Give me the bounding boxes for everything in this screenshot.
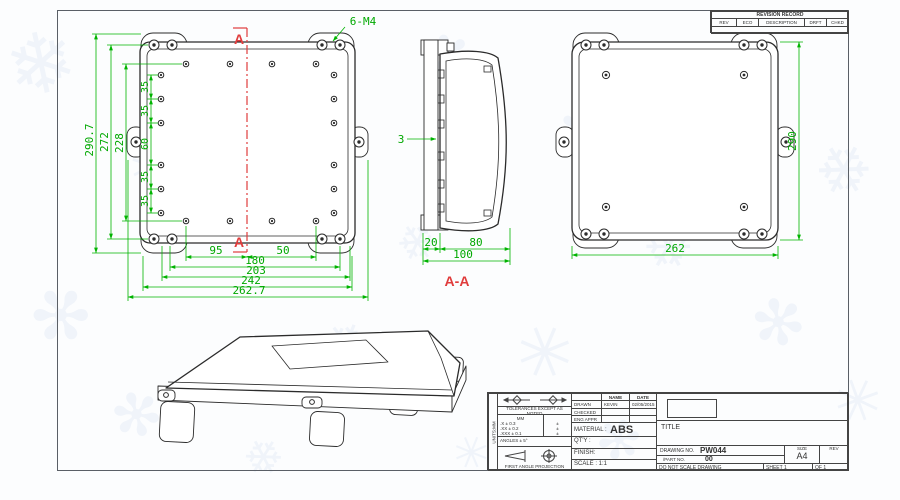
revision-empty-row <box>711 26 849 34</box>
datum-symbols-row <box>497 393 572 407</box>
section-marker-bottom: A <box>234 234 244 250</box>
thickness-dim: 3 <box>398 133 405 146</box>
section-dims-bottom: 20 80 100 <box>423 228 510 265</box>
part-no-value: 00 <box>705 456 713 463</box>
svg-text:35: 35 <box>140 105 151 117</box>
no-scale-note: DO NOT SCALE DRAWING <box>656 463 764 471</box>
front-view: A A 6-M4 290.7 272 228 35 <box>83 15 377 301</box>
size-cell: SIZE A4 <box>784 445 820 464</box>
datum-symbols-icon <box>502 394 568 406</box>
of-cell: OF 1 <box>812 463 849 471</box>
revision-record-table: REVISION RECORD REV ECO DESCRIPTION DRFT… <box>710 10 848 33</box>
material-value: ABS <box>610 424 633 436</box>
sheet-cell: SHEET 1 <box>763 463 813 471</box>
svg-text:100: 100 <box>453 248 473 261</box>
svg-text:50: 50 <box>276 244 289 257</box>
svg-text:272: 272 <box>98 132 111 152</box>
svg-text:35: 35 <box>140 171 151 183</box>
first-angle-projection-icon <box>501 448 571 463</box>
back-view: 290 262 <box>556 33 803 259</box>
title-cell: TITLE <box>656 420 849 446</box>
section-marker-top: A <box>234 31 244 47</box>
section-view-label: A-A <box>445 273 470 289</box>
svg-text:262: 262 <box>665 242 685 255</box>
drawing-no-value: PW044 <box>700 446 726 455</box>
svg-text:35: 35 <box>140 81 151 93</box>
svg-text:290.7: 290.7 <box>83 123 96 156</box>
tolerance-inch-col: ± ± ± <box>543 414 572 437</box>
projection-label: FIRST ANGLE PROJECTION <box>498 464 571 469</box>
cad-drawing-sheet: ❄✳✻❄✳✻❄✳✻❄✳✻❄✳✻❄✳✻❄✳ <box>0 0 900 500</box>
svg-text:262.7: 262.7 <box>232 284 265 297</box>
scale-cell: SCALE : 1:1 <box>571 459 657 471</box>
svg-text:35: 35 <box>140 195 151 207</box>
tolerance-table: MM .X ± 0.3 .XX ± 0.2 .XXX ± 0.1 <box>497 414 544 437</box>
svg-text:228: 228 <box>113 133 126 153</box>
isometric-view <box>158 331 466 447</box>
size-value: A4 <box>785 451 819 461</box>
svg-text:290: 290 <box>786 131 799 151</box>
thread-callout: 6-M4 <box>350 15 377 28</box>
logo-box <box>667 399 717 418</box>
section-view: 3 20 80 100 A-A <box>398 40 510 289</box>
projection-cell: FIRST ANGLE PROJECTION <box>497 446 572 471</box>
title-block: UNITS:MM TOLERANCES EXCEPT AS NOTED MM .… <box>487 392 848 470</box>
material-cell: MATERIAL : ABS <box>571 422 657 437</box>
svg-text:60: 60 <box>140 138 151 150</box>
svg-text:95: 95 <box>209 244 222 257</box>
rev-cell: REV <box>819 445 849 464</box>
svg-text:20: 20 <box>424 236 437 249</box>
logo-row <box>656 393 849 421</box>
